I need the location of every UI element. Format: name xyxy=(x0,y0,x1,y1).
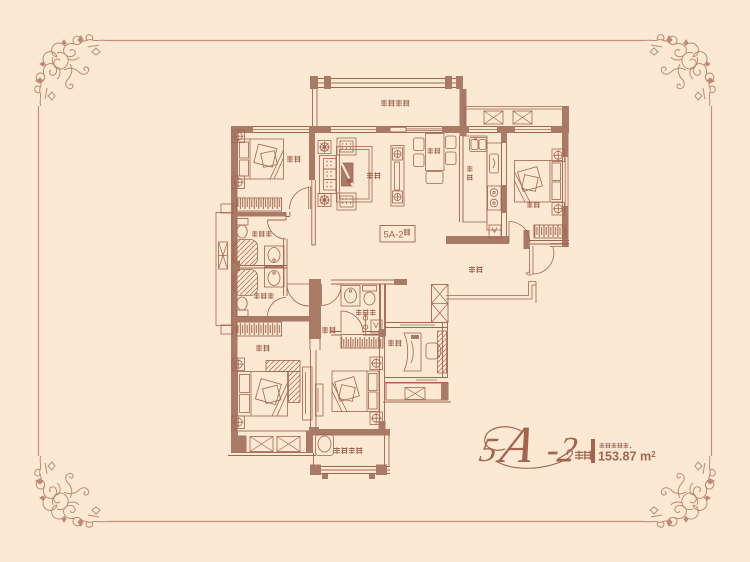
svg-text:153.87 m2: 153.87 m2 xyxy=(598,450,656,464)
svg-text:5A-2: 5A-2 xyxy=(384,230,404,241)
